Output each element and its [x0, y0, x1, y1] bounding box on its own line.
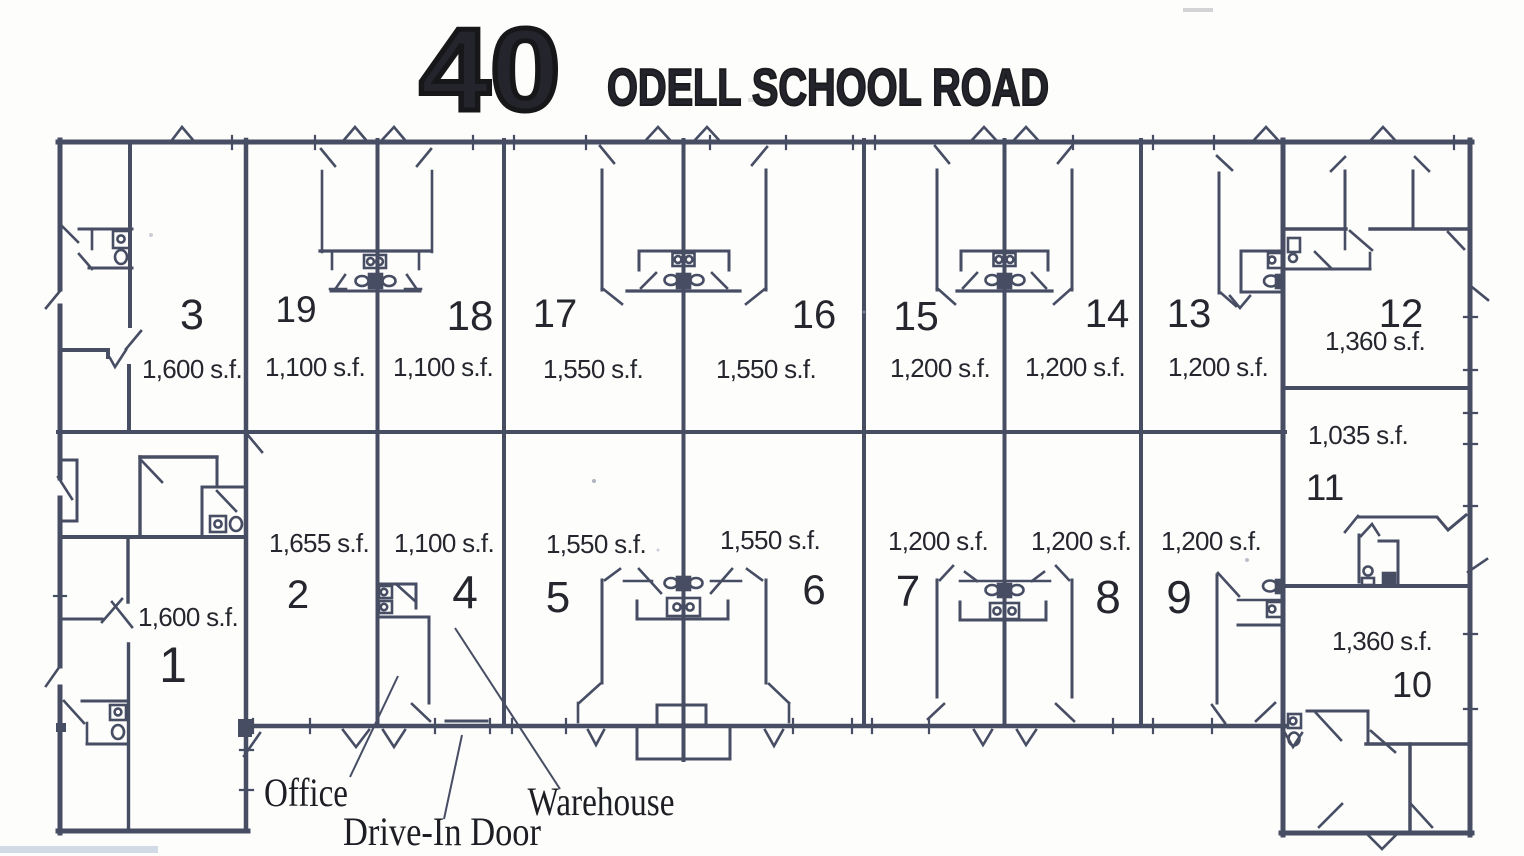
svg-text:11: 11 — [1306, 467, 1344, 508]
svg-text:5: 5 — [546, 573, 570, 622]
svg-text:1,360 s.f.: 1,360 s.f. — [1332, 626, 1432, 656]
svg-text:10: 10 — [1392, 664, 1432, 705]
svg-text:1: 1 — [159, 637, 187, 693]
svg-text:1,035 s.f.: 1,035 s.f. — [1308, 420, 1408, 450]
svg-text:1,550 s.f.: 1,550 s.f. — [546, 529, 646, 559]
svg-text:13: 13 — [1167, 292, 1212, 336]
svg-text:1,655 s.f.: 1,655 s.f. — [269, 528, 369, 558]
svg-text:18: 18 — [447, 292, 494, 339]
svg-text:1,200 s.f.: 1,200 s.f. — [1161, 526, 1261, 556]
svg-text:ODELL SCHOOL ROAD: ODELL SCHOOL ROAD — [607, 59, 1049, 117]
svg-text:8: 8 — [1095, 571, 1121, 623]
svg-text:7: 7 — [896, 567, 920, 616]
svg-text:1,200 s.f.: 1,200 s.f. — [890, 353, 990, 383]
svg-text:14: 14 — [1085, 292, 1130, 336]
svg-text:1,550 s.f.: 1,550 s.f. — [543, 354, 643, 384]
svg-text:1,200 s.f.: 1,200 s.f. — [1168, 352, 1268, 382]
svg-text:2: 2 — [287, 573, 309, 617]
svg-text:16: 16 — [792, 293, 837, 337]
svg-text:1,200 s.f.: 1,200 s.f. — [1025, 352, 1125, 382]
svg-text:Office: Office — [264, 770, 348, 815]
svg-text:1,550 s.f.: 1,550 s.f. — [720, 525, 820, 555]
svg-text:1,360 s.f.: 1,360 s.f. — [1325, 326, 1425, 356]
svg-text:1,600 s.f.: 1,600 s.f. — [142, 354, 242, 384]
svg-text:1,600 s.f.: 1,600 s.f. — [138, 602, 238, 632]
svg-text:15: 15 — [893, 293, 939, 339]
svg-text:6: 6 — [802, 566, 825, 613]
svg-text:19: 19 — [275, 289, 316, 330]
svg-text:1,100 s.f.: 1,100 s.f. — [394, 528, 494, 558]
svg-text:1,550 s.f.: 1,550 s.f. — [716, 354, 816, 384]
svg-text:Drive-In Door: Drive-In Door — [343, 809, 541, 854]
svg-text:1,200 s.f.: 1,200 s.f. — [1031, 526, 1131, 556]
svg-text:3: 3 — [180, 291, 204, 339]
svg-text:1,200 s.f.: 1,200 s.f. — [888, 526, 988, 556]
svg-text:4: 4 — [452, 566, 478, 618]
svg-text:40: 40 — [420, 4, 561, 135]
svg-text:17: 17 — [533, 292, 578, 336]
svg-text:Warehouse: Warehouse — [528, 779, 675, 824]
svg-text:1,100 s.f.: 1,100 s.f. — [265, 352, 365, 382]
svg-text:1,100 s.f.: 1,100 s.f. — [393, 352, 493, 382]
svg-text:9: 9 — [1166, 571, 1192, 623]
